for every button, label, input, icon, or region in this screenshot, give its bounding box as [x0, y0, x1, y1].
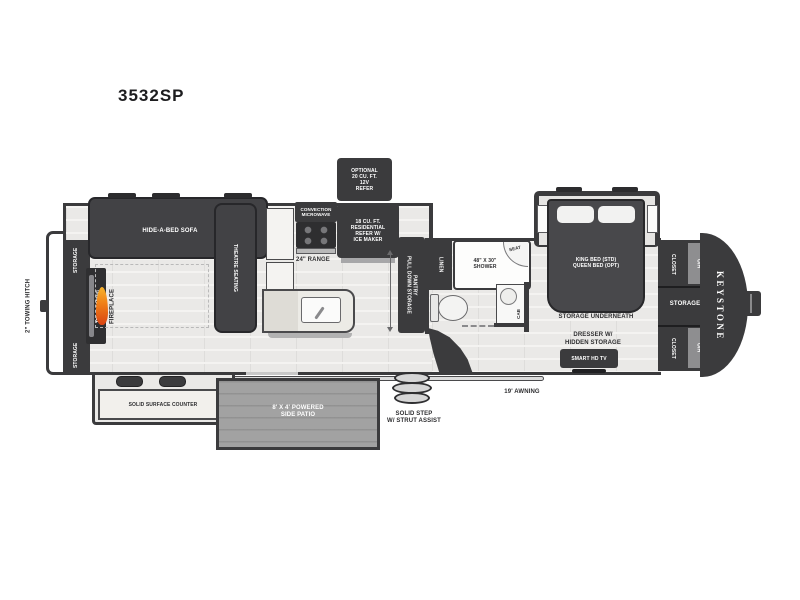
slide-arrow-line [390, 254, 391, 328]
brand-label: KEYSTONE [712, 260, 728, 352]
range-oven-front [296, 248, 336, 254]
bar-stool [159, 376, 186, 387]
side-patio-label: 8' X 4' POWERED SIDE PATIO [238, 403, 358, 421]
bedroom-tv: SMART HD TV [560, 349, 618, 368]
closet-top-label: CLOSET [662, 243, 684, 285]
sofa-tab-icon [108, 193, 136, 198]
rear-hitch-bump [40, 300, 47, 312]
dresser-label: DRESSER W/ HIDDEN STORAGE [551, 331, 635, 348]
kingpin-notch [750, 294, 752, 313]
bath-wall-bottom [494, 323, 526, 327]
bedroom-tv-bar [572, 369, 606, 373]
island-lower-counter [264, 291, 298, 331]
solid-step-label: SOLID STEP W/ STRUT ASSIST [386, 409, 442, 427]
pillow-right [598, 206, 635, 223]
nightstand-right [647, 205, 658, 233]
model-title: 3532SP [118, 86, 185, 106]
range-label: 24" RANGE [296, 257, 346, 265]
solid-surface-counter: SOLID SURFACE COUNTER [98, 389, 228, 420]
bed-slide-tab-icon [556, 187, 582, 192]
bath-pocket-door [462, 325, 494, 327]
rear-cap [46, 231, 66, 375]
patio-door-window [246, 372, 298, 375]
vanity-sink [500, 288, 517, 305]
range-cooktop-icon [296, 222, 336, 248]
closet-bottom-label: CLOSET [662, 328, 684, 369]
bed-label: KING BED (STD) QUEEN BED (OPT) [556, 253, 636, 273]
optional-refer-label: OPTIONAL 20 CU. FT. 12V REFER [337, 158, 392, 201]
shower-label: 48" X 30" SHOWER [458, 252, 512, 276]
bed-slide-tab-icon [612, 187, 638, 192]
kitchen-counter-upper [266, 208, 294, 260]
convection-microwave-label: CONVECTION MICROWAVE [295, 202, 337, 222]
bar-stool [116, 376, 143, 387]
rear-storage-top-label: STORAGE [68, 243, 84, 277]
pillow-left [557, 206, 594, 223]
entry-step-icon [394, 392, 430, 404]
storage-underneath-label: STORAGE UNDERNEATH [548, 313, 644, 322]
sofa-tab-icon [152, 193, 180, 198]
slide-travel-outline [95, 264, 209, 328]
toilet [438, 295, 468, 321]
slide-arrow-down-icon [387, 327, 393, 332]
island-shadow [268, 333, 352, 338]
awning-label: 19' AWNING [492, 389, 552, 397]
towing-hitch-label: 2" TOWING HITCH [24, 273, 34, 339]
floorplan-canvas: 3532SP 2" TOWING HITCH STORAGE STORAGE T… [0, 0, 800, 600]
rear-storage-bottom-label: STORAGE [68, 338, 84, 372]
refer-front [341, 258, 395, 263]
sofa-tab-icon [224, 193, 252, 198]
vanity-cab-label: CAB [514, 305, 523, 322]
pantry: PULL DOWN STORAGE PANTRY [398, 237, 425, 333]
slide-arrow-up-icon [387, 250, 393, 255]
theatre-seating-label: THEATRE SEATING [226, 215, 244, 321]
kingpin-hitch [744, 291, 761, 316]
wall-step [429, 203, 433, 241]
linen-closet: LINEN [429, 240, 452, 290]
